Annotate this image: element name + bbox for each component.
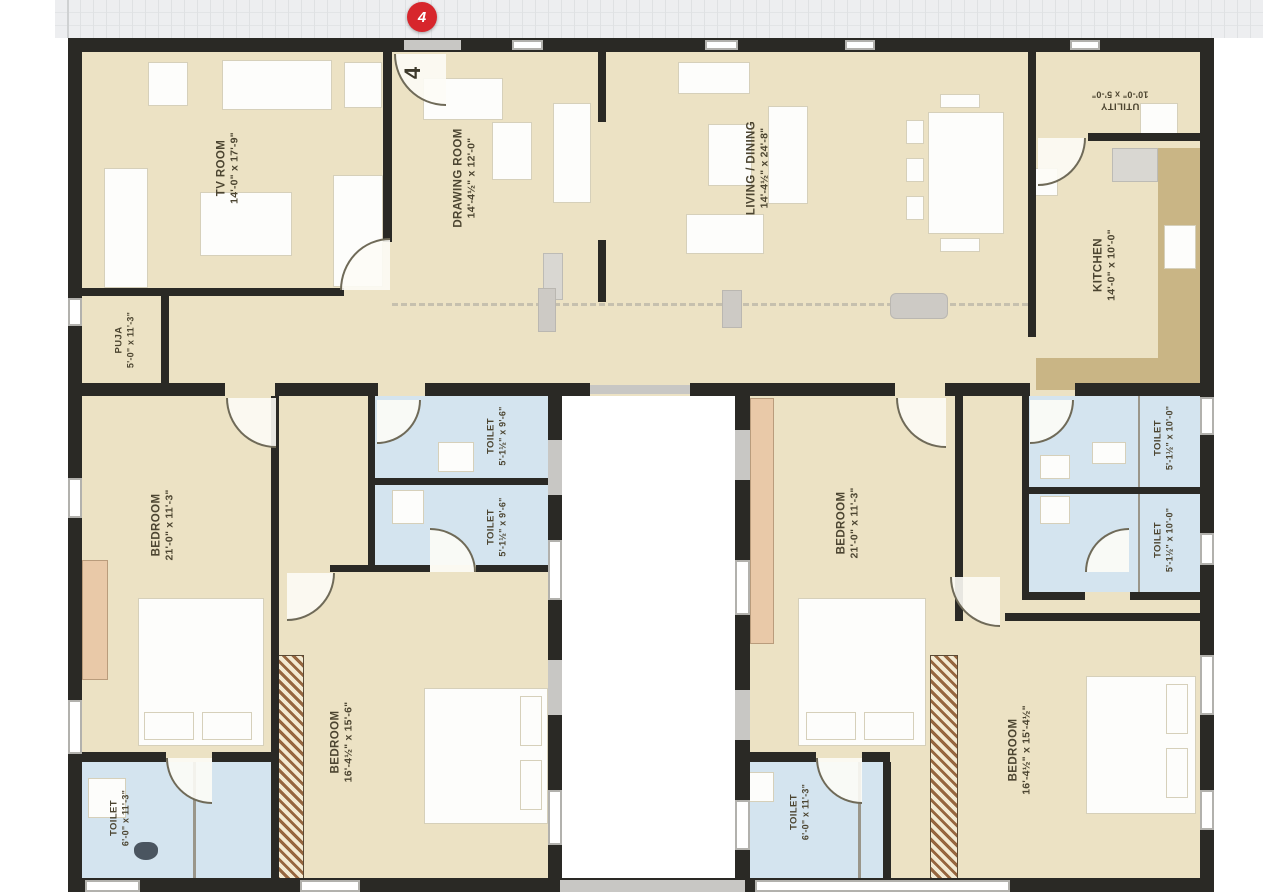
wc-fixture-icon <box>134 842 158 860</box>
window <box>85 880 140 892</box>
window <box>705 40 738 50</box>
shaft-vent <box>548 660 562 715</box>
window <box>548 790 562 845</box>
window <box>548 540 562 600</box>
wall-left <box>68 38 82 892</box>
unit-marker-pin[interactable]: 4 <box>407 2 437 32</box>
wall-utility-bottom <box>1088 133 1200 141</box>
wall-tv-bottom <box>82 288 344 296</box>
toilet-shelf <box>1092 442 1126 464</box>
pillow <box>1166 684 1188 734</box>
washbasin <box>88 778 126 818</box>
wall-mid <box>1075 383 1200 396</box>
central-open-shaft <box>562 396 735 892</box>
utility-washer <box>1140 103 1178 135</box>
column <box>538 288 556 332</box>
kitchen-sink <box>1164 225 1196 269</box>
shaft-vent <box>735 430 750 480</box>
wall-toilets-right <box>1022 396 1029 592</box>
toilet-partition <box>1138 396 1140 592</box>
wall-right <box>1200 38 1214 892</box>
kitchen-counter-right <box>1158 148 1200 390</box>
living-sofa-top <box>678 62 750 94</box>
window <box>735 800 750 850</box>
wall-toilets-right-bottom <box>1022 592 1085 600</box>
tv-room-table <box>200 192 292 256</box>
wall-toilets-right-divider <box>1022 487 1200 494</box>
column <box>722 290 742 328</box>
washbasin <box>392 490 424 524</box>
dining-chair <box>940 94 980 108</box>
window <box>512 40 543 50</box>
window <box>68 298 82 326</box>
dining-chair <box>940 238 980 252</box>
unit-marker-label: 4 <box>418 9 426 26</box>
window <box>735 560 750 615</box>
wall-toilet-br-right <box>883 762 891 892</box>
washbasin <box>438 442 474 472</box>
drawing-room-seat <box>553 103 591 203</box>
pillow <box>520 760 542 810</box>
tv-room-chair-2 <box>344 62 382 108</box>
wall-toilet-bl-top <box>212 752 271 762</box>
wall-tv-drawing <box>383 52 392 242</box>
dining-chair <box>906 196 924 220</box>
window <box>300 880 360 892</box>
washbasin <box>1040 455 1070 479</box>
living-sofa-bottom <box>686 214 764 254</box>
wall-toilet-br-top <box>862 752 890 762</box>
wall-mid <box>68 383 225 396</box>
dining-chair <box>906 158 924 182</box>
wall-bedroom-lb-top <box>330 565 430 572</box>
wall-toilets-right-bottom <box>1130 592 1200 600</box>
pillow <box>144 712 194 740</box>
shaft-lintel <box>590 385 690 394</box>
wall-top <box>68 38 1214 52</box>
shaft-bottom-sill <box>560 880 745 892</box>
wardrobe-right-bedroom <box>750 398 774 644</box>
tv-room-seat <box>104 168 148 288</box>
window <box>1200 655 1214 715</box>
window <box>1200 533 1214 565</box>
window <box>1070 40 1100 50</box>
top-grid-strip <box>55 0 1263 38</box>
wall-living-kitchen <box>1028 52 1036 337</box>
shaft-vent <box>548 440 562 495</box>
floor-plan-canvas: 4 <box>0 0 1263 892</box>
wall-mid <box>945 383 1030 396</box>
wall-toilet-bl-top <box>68 752 166 762</box>
pillow <box>202 712 252 740</box>
strip-divider-line <box>67 0 69 38</box>
window <box>68 478 82 518</box>
pillow <box>806 712 856 740</box>
wall-drawing-living-a <box>598 52 606 122</box>
wall-mid <box>275 383 378 396</box>
wardrobe-hatch-left <box>278 655 304 892</box>
unit-number-label: 4 <box>400 67 426 79</box>
tv-room-chair <box>148 62 188 106</box>
kitchen-stove <box>1112 148 1158 182</box>
pillow <box>520 696 542 746</box>
dining-chair <box>906 120 924 144</box>
wall-left-wing-vertical <box>271 396 279 892</box>
window <box>845 40 875 50</box>
wall-bedroom-rb-top <box>1005 613 1200 621</box>
wardrobe-hatch-right <box>930 655 958 892</box>
living-table <box>708 124 752 186</box>
shaft-vent <box>735 690 750 740</box>
column-wide <box>890 293 948 319</box>
wall-mid <box>690 383 895 396</box>
pillow <box>1166 748 1188 798</box>
wall-mid <box>425 383 590 396</box>
wall-toilet-br-top <box>750 752 816 762</box>
wall-drawing-living-b <box>598 240 606 302</box>
living-sofa-right <box>768 106 808 204</box>
wardrobe-left-bedroom <box>82 560 108 680</box>
wall-toilets-divider <box>368 478 558 485</box>
washbasin <box>1040 496 1070 524</box>
entry-threshold <box>404 40 461 50</box>
tv-room-sofa <box>222 60 332 110</box>
window <box>68 700 82 754</box>
window <box>1200 790 1214 830</box>
window <box>755 880 1010 892</box>
wall-bedroom-lb-top <box>476 565 558 572</box>
drawing-room-table <box>492 122 532 180</box>
dining-table <box>928 112 1004 234</box>
window <box>1200 397 1214 435</box>
wall-puja-right <box>161 295 169 390</box>
pillow <box>864 712 914 740</box>
